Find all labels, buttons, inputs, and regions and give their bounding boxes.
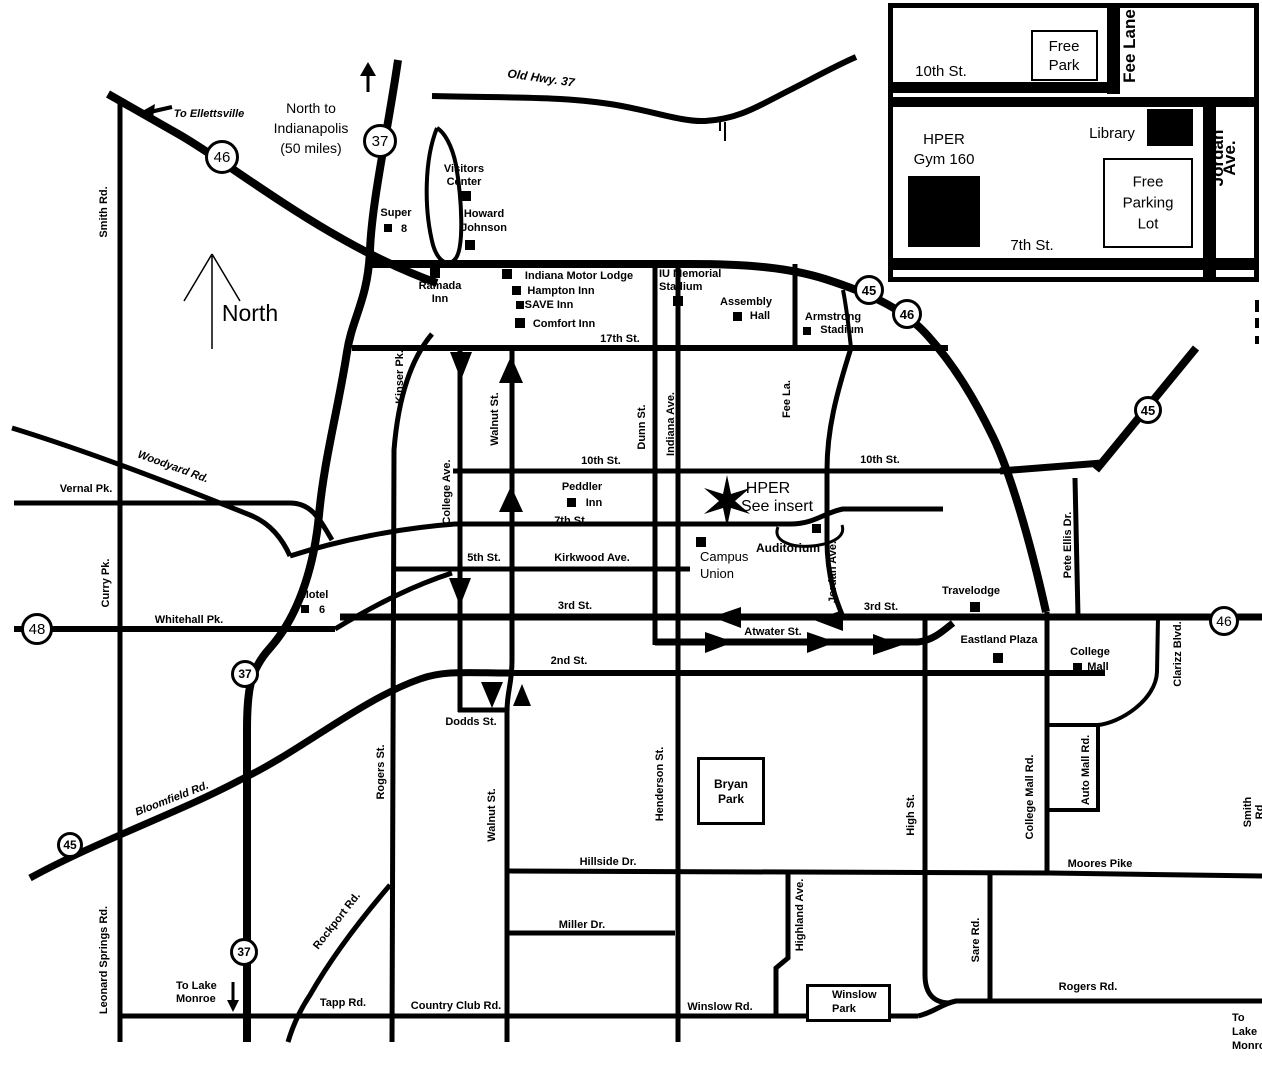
marker-campus-union	[696, 537, 706, 547]
label-eastland-plaza: Eastland Plaza	[960, 634, 1037, 646]
marker-inset-library-building	[1147, 109, 1193, 146]
route-shield-37-7: 37	[231, 660, 259, 688]
label-college-mall: College	[1070, 646, 1110, 658]
marker-armstrong-stadium	[803, 327, 811, 335]
one-way-arrow-college-south-1	[450, 352, 472, 380]
one-way-arrow-dodds-south	[481, 682, 503, 708]
label-whitehall-pk: Whitehall Pk.	[155, 614, 223, 626]
label-3rd-st-east: 3rd St.	[864, 601, 898, 613]
label-pete-ellis-dr: Pete Ellis Dr.	[1062, 512, 1074, 579]
marker-hampton-inn	[512, 286, 521, 295]
label-motel-6-number: 6	[319, 604, 325, 616]
label-miller-dr: Miller Dr.	[559, 919, 605, 931]
inset-road-10th-st	[891, 82, 1107, 93]
label-super-8-number: 8	[401, 223, 407, 235]
marker-college-mall	[1073, 663, 1082, 672]
label-indiana-ave: Indiana Ave.	[665, 392, 677, 456]
label-visitors-center: Visitors Center	[444, 163, 484, 189]
label-assembly: Assembly	[720, 296, 772, 308]
edge-dash-2	[1255, 318, 1259, 328]
label-to-lake-monroe-se: To Lake Monroe	[1232, 1011, 1262, 1053]
label-hper: HPER	[746, 483, 790, 495]
label-hampton-inn: Hampton Inn	[527, 285, 594, 297]
label-clarizz-blvd: Clarizz Blvd.	[1172, 621, 1184, 686]
road-highland-ave	[776, 871, 788, 1016]
label-inset-free-park: Free Park	[1049, 37, 1080, 75]
edge-dash-3	[1255, 336, 1259, 344]
label-2nd-st: 2nd St.	[551, 655, 588, 667]
inset-road-fee-lane	[1107, 6, 1120, 94]
label-moores-pike: Moores Pike	[1068, 858, 1133, 870]
label-inset-library: Library	[1089, 128, 1135, 140]
marker-ramada-inn	[430, 268, 440, 278]
one-way-arrow-3rd-west-2	[814, 610, 843, 631]
label-fee-la: Fee La.	[781, 380, 793, 418]
inset-road-divider	[891, 97, 1256, 107]
label-peddler: Peddler	[562, 481, 602, 493]
label-tapp-rd: Tapp Rd.	[320, 997, 366, 1009]
marker-assembly-hall	[733, 312, 742, 321]
label-5th-st: 5th St.	[467, 552, 501, 564]
label-walnut-st-north: Walnut St.	[489, 392, 501, 445]
route-shield-46-0: 46	[205, 140, 239, 174]
label-vernal-pk: Vernal Pk.	[60, 483, 113, 495]
label-17th-st: 17th St.	[600, 333, 640, 345]
label-inset-hper-gym: HPER Gym 160	[914, 130, 975, 170]
label-inset-fee-lane: Fee Lane	[1124, 9, 1136, 83]
label-winslow-park: Winslow Park	[832, 988, 877, 1016]
label-comfort-inn: Comfort Inn	[533, 318, 595, 330]
label-7th-st-small: 7th St.	[554, 515, 588, 527]
label-winslow-rd: Winslow Rd.	[687, 1001, 752, 1013]
road-visitors-center-loop	[427, 128, 462, 263]
label-campus-union: Campus Union	[700, 548, 748, 582]
marker-eastland-plaza	[993, 653, 1003, 663]
one-way-arrow-college-south-2	[449, 578, 471, 606]
route-shield-37-9: 37	[230, 938, 258, 966]
label-rogers-st: Rogers St.	[375, 744, 387, 799]
road-old-hwy-37	[432, 57, 856, 121]
label-10th-st-west: 10th St.	[581, 455, 621, 467]
label-sare-rd: Sare Rd.	[970, 918, 982, 963]
label-rogers-rd: Rogers Rd.	[1059, 981, 1118, 993]
marker-travelodge	[970, 602, 980, 612]
route-shield-45-4: 45	[1134, 396, 1162, 424]
label-armstrong-stadium: Stadium	[820, 324, 863, 336]
marker-auditorium	[812, 524, 821, 533]
one-way-arrow-walnut-north-1	[499, 356, 523, 383]
road-7th-st	[290, 509, 943, 556]
road-bloomfield-rd	[30, 673, 510, 878]
label-highland-ave: Highland Ave.	[794, 879, 806, 952]
marker-iu-memorial-stadium	[673, 296, 683, 306]
label-save-inn: SAVE Inn	[525, 299, 574, 311]
label-henderson-st: Henderson St.	[654, 747, 666, 822]
label-inset-7th-st: 7th St.	[1010, 240, 1053, 252]
label-dunn-st: Dunn St.	[636, 404, 648, 449]
route-shield-46-6: 46	[1209, 606, 1239, 636]
one-way-arrow-atwater-east-1	[705, 632, 734, 653]
marker-save-inn	[516, 301, 524, 309]
label-dodds-st: Dodds St.	[445, 716, 496, 728]
road-vernal-pk	[14, 503, 332, 540]
label-super: Super	[380, 207, 411, 219]
label-leonard-springs-rd: Leonard Springs Rd.	[98, 906, 110, 1014]
marker-comfort-inn	[515, 318, 525, 328]
label-auditorium: Auditorium	[756, 542, 820, 554]
one-way-arrow-atwater-east-3	[873, 634, 902, 655]
label-college-mall-2: Mall	[1087, 661, 1108, 673]
one-way-arrow-walnut-north-2	[499, 486, 523, 512]
label-ramada-inn: Ramada Inn	[419, 280, 462, 306]
marker-super-8	[384, 224, 392, 232]
marker-visitors-center	[461, 191, 471, 201]
label-college-mall-rd: College Mall Rd.	[1024, 755, 1036, 840]
route-shield-45-2: 45	[854, 275, 884, 305]
label-inset-free-parking-lot: Free Parking Lot	[1123, 172, 1174, 235]
label-travelodge: Travelodge	[942, 585, 1000, 597]
label-to-ellettsville: To Ellettsville	[174, 108, 245, 120]
label-north-to-indianapolis: North to Indianapolis (50 miles)	[274, 98, 349, 158]
label-curry-pk: Curry Pk.	[100, 559, 112, 608]
label-smith-rd-east: Smith Rd	[1242, 797, 1262, 828]
road-hwy37	[247, 60, 398, 1042]
label-auto-mall-rd: Auto Mall Rd.	[1080, 735, 1092, 805]
marker-motel-6	[301, 605, 309, 613]
label-north: North	[222, 307, 278, 319]
road-rogers-rd	[918, 1001, 1262, 1016]
road-hillside-moores	[508, 871, 1262, 876]
one-way-arrow-3rd-west-1	[712, 607, 741, 628]
label-motel: Motel	[300, 589, 329, 601]
label-iu-memorial-stadium: IU Memorial Stadium	[659, 268, 721, 294]
route-shield-45-8: 45	[57, 832, 83, 858]
label-to-lake-monroe: To Lake Monroe	[176, 980, 217, 1006]
label-walnut-st-south: Walnut St.	[486, 788, 498, 841]
label-howard-johnson: Howard Johnson	[461, 207, 507, 235]
road-walnut-st	[507, 348, 512, 1042]
marker-howard-johnson	[465, 240, 475, 250]
label-college-ave: College Ave.	[441, 459, 453, 524]
label-high-st: High St.	[905, 794, 917, 836]
label-see-insert: See insert	[741, 501, 813, 513]
city-map: To EllettsvilleNorth to Indianapolis (50…	[0, 0, 1262, 1069]
label-peddler-inn: Inn	[586, 497, 603, 509]
label-armstrong: Armstrong	[805, 311, 861, 323]
label-country-club-rd: Country Club Rd.	[411, 1000, 501, 1012]
route-shield-48-5: 48	[21, 613, 53, 645]
label-smith-rd-west: Smith Rd.	[98, 186, 110, 237]
road-10th-st-east-bold	[1000, 463, 1102, 471]
route-shield-37-1: 37	[363, 124, 397, 158]
label-10th-st-east: 10th St.	[860, 454, 900, 466]
route-shield-46-3: 46	[892, 299, 922, 329]
label-assembly-hall: Hall	[750, 310, 770, 322]
label-kinser-pk: Kinser Pk.	[394, 350, 406, 404]
label-inset-10th-st: 10th St.	[915, 66, 967, 78]
label-bryan-park: Bryan Park	[714, 777, 748, 807]
road-atwater-st	[655, 623, 953, 642]
label-kirkwood-ave: Kirkwood Ave.	[554, 552, 630, 564]
marker-indiana-motor-lodge	[502, 269, 512, 279]
label-jordan-ave-map: Jordan Ave.	[827, 541, 839, 603]
label-atwater-st: Atwater St.	[744, 626, 801, 638]
label-indiana-motor-lodge: Indiana Motor Lodge	[525, 270, 633, 282]
road-woodyard-rd	[12, 428, 290, 556]
edge-dash-1	[1255, 300, 1259, 312]
one-way-arrow-dodds-north	[513, 684, 531, 706]
marker-peddler-inn	[567, 498, 576, 507]
marker-inset-hper-building	[908, 176, 980, 247]
road-pete-ellis-dr	[1075, 478, 1078, 617]
inset-road-7th-st	[891, 258, 1256, 270]
label-3rd-st-west: 3rd St.	[558, 600, 592, 612]
label-hillside-dr: Hillside Dr.	[580, 856, 637, 868]
label-inset-jordan-ave: Jordan Ave.	[1212, 130, 1236, 187]
one-way-arrow-atwater-east-2	[807, 632, 836, 653]
